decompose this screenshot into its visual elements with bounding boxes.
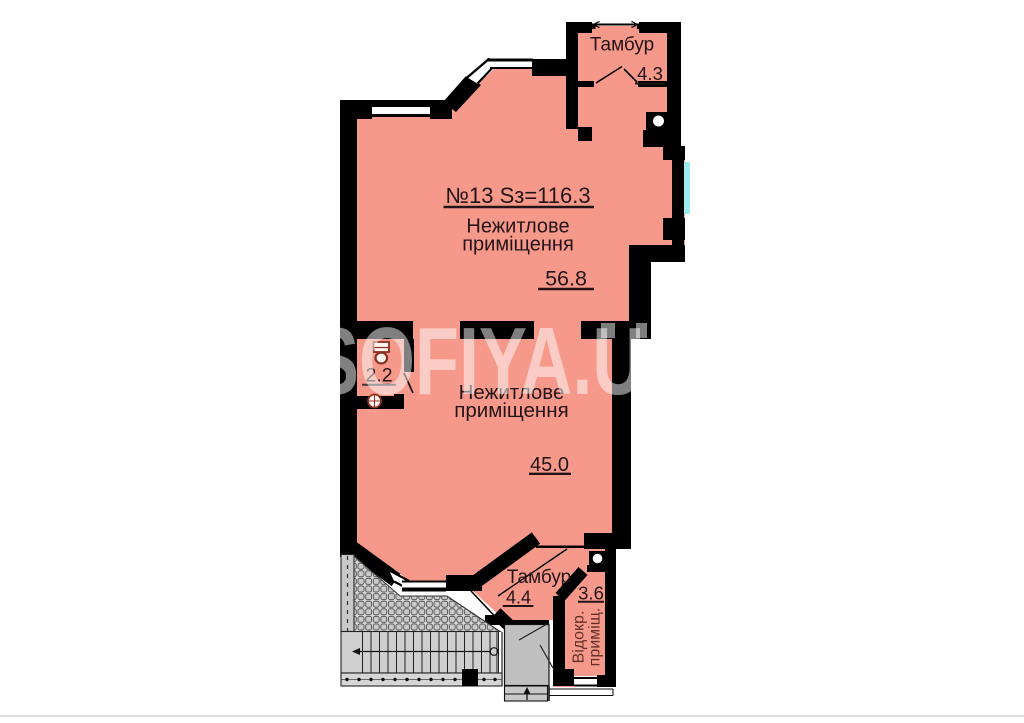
svg-text:Відокр.: Відокр. (571, 611, 588, 664)
svg-text:приміщення: приміщення (462, 234, 574, 256)
svg-text:приміщ.: приміщ. (587, 608, 604, 667)
svg-text:Тамбур: Тамбур (507, 567, 572, 588)
svg-text:SOFIYA.UA: SOFIYA.UA (311, 307, 696, 414)
svg-text:Тамбур: Тамбур (590, 35, 655, 56)
svg-text:4.4: 4.4 (506, 588, 531, 608)
svg-text:3.6: 3.6 (578, 583, 604, 604)
svg-text:4.3: 4.3 (637, 63, 663, 84)
svg-text:№13 Sз=116.3: №13 Sз=116.3 (445, 183, 590, 208)
svg-text:56.8: 56.8 (545, 267, 587, 291)
